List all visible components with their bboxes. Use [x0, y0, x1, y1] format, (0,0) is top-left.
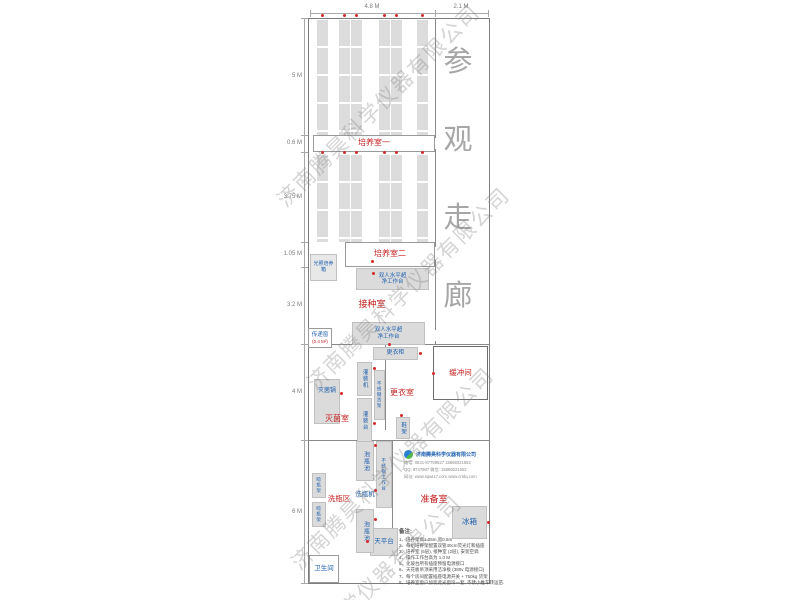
- changing-room-label: 更衣室: [382, 389, 422, 398]
- culture-rack: [317, 155, 328, 242]
- dimension-label-left-4: 1.05 M: [276, 251, 302, 257]
- marker-dot: [383, 151, 386, 154]
- marker-dot: [372, 272, 375, 275]
- culture-rack: [391, 155, 402, 242]
- steel-worktable: 不锈钢工作台: [376, 441, 392, 508]
- dimension-tick: [301, 242, 308, 243]
- drying-rack-2-label: 晾瓶架: [316, 506, 321, 523]
- dimension-label-left-3: 3.75 M: [276, 194, 302, 200]
- bathroom: 卫生间: [309, 555, 339, 583]
- dimension-tick: [301, 135, 308, 136]
- dimension-tick: [301, 583, 308, 584]
- marker-dot: [419, 352, 422, 355]
- culture-rack: [379, 155, 390, 242]
- culture-rack: [351, 20, 362, 137]
- bathroom-label: 卫生间: [314, 565, 334, 572]
- marker-dot: [374, 518, 377, 521]
- note-item: 8、培养室窗户加装遮光窗帘一套, 不锈小推车转运苗.: [399, 580, 491, 586]
- company-block: 济南腾昊科学仪器有限公司 电话: 0531-87799627 158660215…: [404, 450, 492, 480]
- culture-rack: [339, 155, 350, 242]
- pass-window: 传递窗 (0.4 M²): [308, 328, 332, 348]
- marker-dot: [321, 151, 324, 154]
- clean-bench-2-label: 双人水平超净工作台: [373, 327, 405, 340]
- dimension-label-left-1: 5 M: [276, 73, 302, 79]
- marker-dot: [355, 14, 358, 17]
- marker-dot: [432, 372, 435, 375]
- shoe-rack-label: 鞋架: [400, 422, 406, 435]
- marker-dot: [374, 489, 377, 492]
- marker-dot: [373, 367, 376, 370]
- note-item: 6、天花板吊顶采用洁净板 (380v 电源接口): [399, 567, 491, 573]
- dimension-tick: [301, 440, 308, 441]
- filling-machine-label: 灌装机: [361, 369, 367, 389]
- shoe-rack: 鞋架: [396, 417, 410, 439]
- culture-rack: [417, 155, 428, 242]
- room1-walkway: 培养室一: [313, 135, 435, 152]
- marker-dot: [395, 14, 398, 17]
- dimension-label-top-right: 2.1 M: [440, 4, 482, 10]
- wall-horizontal-2: [308, 440, 490, 441]
- marker-dot: [343, 151, 346, 154]
- marker-dot: [421, 151, 424, 154]
- notes-header: 备注:: [399, 527, 491, 535]
- drying-rack-2: 晾瓶架: [312, 502, 326, 527]
- clean-bench-1: 双人水平超净工作台: [356, 268, 429, 290]
- corridor-char: 观: [443, 116, 472, 158]
- culture-rack: [339, 20, 350, 137]
- light-incubator-label: 光照培养箱: [313, 262, 335, 274]
- room2-label: 培养室二: [374, 250, 406, 259]
- marker-dot: [321, 14, 324, 17]
- sterilization-room-label: 灭菌室: [317, 415, 357, 424]
- marker-dot: [340, 392, 343, 395]
- balance-table: 天平台: [370, 528, 398, 556]
- dimension-label-left-7: 6 M: [276, 509, 302, 515]
- dimension-tick: [301, 152, 308, 153]
- corridor-char: 参: [443, 38, 472, 80]
- filling-table-label: 灌装台: [361, 411, 367, 431]
- company-qq: QQ: 9747987 微信: 15866021552: [404, 466, 492, 473]
- marker-dot: [355, 151, 358, 154]
- balance-table-label: 天平台: [374, 538, 394, 545]
- visitor-corridor-label: 参 观 走 廊: [441, 38, 475, 314]
- dimension-label-left-2: 0.6 M: [276, 140, 302, 146]
- room1-label: 培养室一: [358, 139, 390, 148]
- culture-rack: [391, 20, 402, 137]
- marker-dot: [487, 521, 490, 524]
- marker-dot: [373, 422, 376, 425]
- company-web: 网址: www.sqwt17.com www.crtdq.com: [404, 473, 492, 480]
- culture-rack: [379, 20, 390, 137]
- dimension-label-top-left: 4.8 M: [350, 4, 394, 10]
- dimension-tick: [301, 267, 308, 268]
- marker-dot: [395, 151, 398, 154]
- dimension-tick: [435, 10, 436, 17]
- fridge-label: 冰箱: [462, 518, 477, 527]
- prep-room-label: 准备室: [412, 495, 456, 505]
- buffer-room-label: 缓冲间: [449, 369, 472, 377]
- inoculation-room-label: 接种室: [352, 300, 392, 310]
- dimension-tick: [301, 344, 308, 345]
- marker-dot: [371, 260, 374, 263]
- dimension-tick: [301, 18, 308, 19]
- filling-table: 灌装台: [357, 398, 372, 443]
- culture-rack: [417, 20, 428, 137]
- floor-plan-canvas: 济南腾昊科学仪器有限公司 济南腾昊科学仪器有限公司 济南腾昊科学仪器有限公司 济…: [0, 0, 800, 600]
- dimension-tick: [310, 10, 311, 17]
- soak-pool-1: 泡瓶池: [356, 441, 374, 481]
- washing-area-label: 洗瓶区: [322, 495, 356, 503]
- note-item: 7、每个房间配置插座电源开关 + 750kg 货架: [399, 574, 491, 580]
- locker-label: 更衣柜: [386, 350, 404, 357]
- dimension-label-left-6: 4 M: [276, 389, 302, 395]
- locker: 更衣柜: [373, 347, 418, 360]
- company-phone: 电话: 0531-87799627 15866021552: [404, 459, 492, 466]
- steel-worktable-label: 不锈钢工作台: [381, 458, 386, 491]
- autoclave-label: 灭菌锅: [318, 388, 336, 395]
- culture-rack: [317, 20, 328, 137]
- corridor-wall: [435, 18, 436, 345]
- soak-pool-2: 泡瓶池: [356, 509, 374, 553]
- wall-vertical-2: [392, 440, 393, 528]
- company-logo-icon: [404, 450, 413, 459]
- marker-dot: [366, 540, 369, 543]
- marker-dot: [374, 444, 377, 447]
- drying-rack-1-label: 晾瓶架: [316, 477, 321, 494]
- buffer-room: 缓冲间: [433, 346, 488, 400]
- corridor-char: 走: [443, 194, 472, 236]
- clean-bench-1-label: 双人水平超净工作台: [377, 273, 409, 286]
- clean-bench-2: 双人水平超净工作台: [352, 322, 425, 345]
- soak-pool-2-label: 泡瓶池: [362, 521, 369, 542]
- marker-dot: [388, 343, 391, 346]
- culture-rack: [351, 155, 362, 242]
- corridor-char: 廊: [443, 272, 472, 314]
- pass-window-size: (0.4 M²): [312, 339, 328, 344]
- light-incubator: 光照培养箱: [310, 254, 337, 281]
- soak-pool-1-label: 泡瓶池: [362, 451, 369, 472]
- dimension-label-left-5: 3.2 M: [276, 302, 302, 308]
- dimension-line-left: [304, 18, 305, 584]
- marker-dot: [383, 14, 386, 17]
- room2-walkway: 培养室二: [345, 242, 435, 267]
- notes-block: 备注: 1、培养架高1.25m,宽0.5m 2、每组培养架配置双管40cm荧光灯…: [399, 527, 491, 586]
- dimension-line-top: [310, 13, 488, 14]
- marker-dot: [400, 414, 403, 417]
- door-gap: [434, 330, 437, 341]
- marker-dot: [421, 14, 424, 17]
- filling-machine: 灌装机: [357, 362, 372, 396]
- dimension-tick: [488, 10, 489, 17]
- company-name: 济南腾昊科学仪器有限公司: [416, 451, 476, 458]
- marker-dot: [343, 14, 346, 17]
